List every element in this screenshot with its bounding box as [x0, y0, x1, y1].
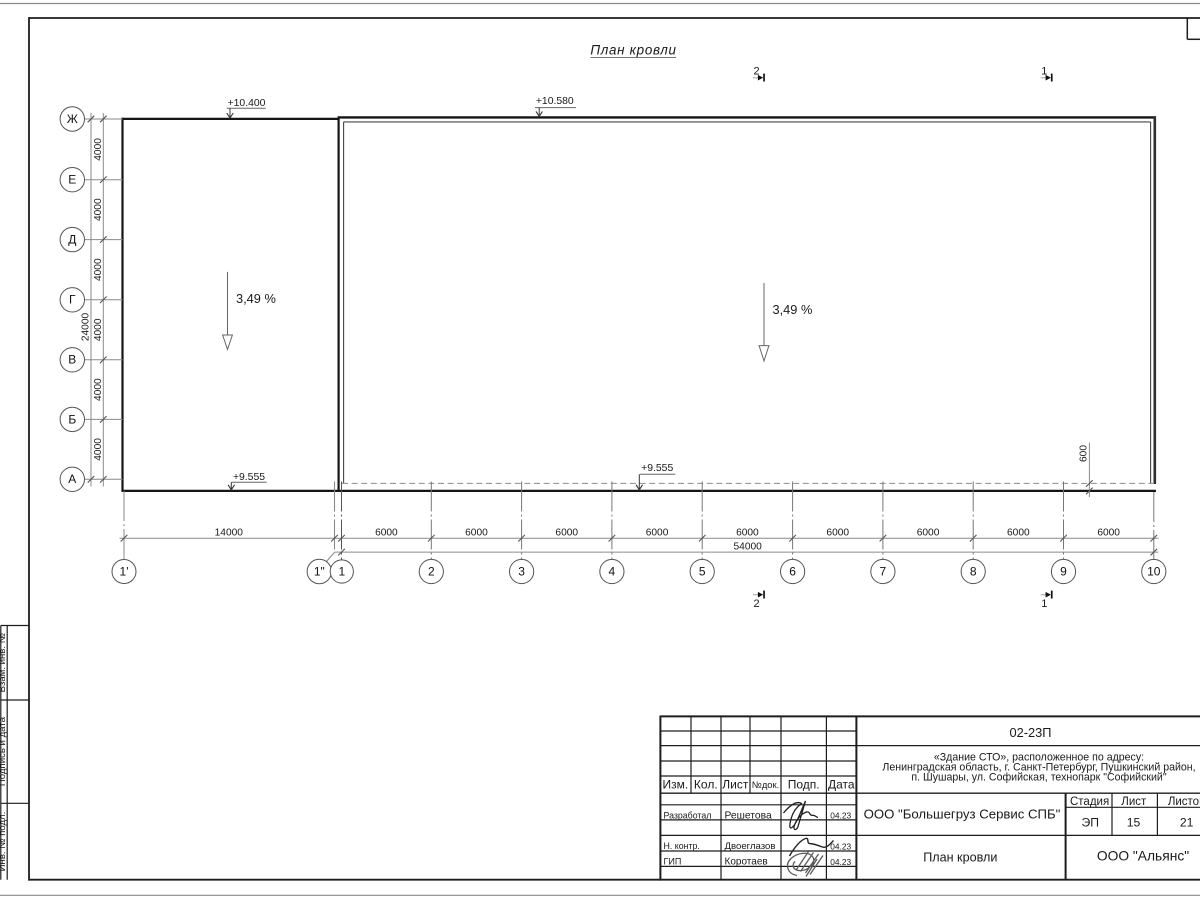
svg-text:8: 8 [970, 564, 977, 578]
svg-text:6000: 6000 [1007, 527, 1030, 538]
svg-text:2: 2 [428, 564, 435, 578]
svg-text:Подп.: Подп. [788, 778, 820, 792]
svg-text:Лист: Лист [722, 778, 749, 792]
svg-text:А: А [68, 472, 76, 486]
svg-text:Разработал: Разработал [664, 810, 712, 820]
svg-text:1': 1' [120, 564, 129, 578]
svg-text:54000: 54000 [734, 541, 763, 552]
svg-text:Решетова: Решетова [725, 810, 772, 821]
svg-text:04.23: 04.23 [830, 810, 851, 820]
svg-text:Лист: Лист [1121, 796, 1147, 808]
svg-text:План кровли: План кровли [923, 850, 997, 864]
svg-text:04.23: 04.23 [830, 841, 851, 851]
svg-text:1": 1" [314, 564, 325, 578]
svg-text:В: В [68, 353, 76, 367]
svg-text:ЭП: ЭП [1082, 816, 1100, 830]
svg-text:+9.555: +9.555 [641, 463, 673, 474]
svg-text:1: 1 [1041, 598, 1047, 610]
svg-text:6000: 6000 [917, 527, 940, 538]
svg-text:24000: 24000 [80, 313, 91, 342]
svg-text:6000: 6000 [736, 527, 759, 538]
svg-text:Дата: Дата [828, 778, 855, 792]
svg-text:Двоеглазов: Двоеглазов [725, 841, 776, 852]
svg-text:+9.555: +9.555 [233, 472, 265, 483]
svg-text:6000: 6000 [646, 527, 669, 538]
svg-text:Г: Г [69, 293, 76, 307]
svg-text:6000: 6000 [1097, 527, 1120, 538]
svg-text:4000: 4000 [93, 378, 104, 401]
svg-text:ООО "Альянс": ООО "Альянс" [1097, 849, 1189, 864]
svg-text:5: 5 [699, 564, 706, 578]
svg-text:3,49 %: 3,49 % [773, 302, 813, 317]
svg-text:№док.: №док. [752, 779, 779, 790]
svg-text:6000: 6000 [375, 527, 398, 538]
svg-text:4: 4 [609, 564, 616, 578]
svg-text:Коротаев: Коротаев [725, 856, 768, 867]
svg-text:Кол.: Кол. [694, 778, 718, 792]
svg-text:10: 10 [1147, 564, 1161, 578]
svg-text:Ж: Ж [67, 112, 78, 126]
svg-text:6000: 6000 [826, 527, 849, 538]
svg-text:4000: 4000 [93, 198, 104, 221]
svg-text:Листов: Листов [1168, 796, 1200, 808]
svg-text:Изм.: Изм. [663, 778, 689, 792]
svg-text:п. Шушары, ул. Софийская, техн: п. Шушары, ул. Софийская, технопарк "Соф… [911, 772, 1166, 784]
svg-text:3,49 %: 3,49 % [236, 291, 276, 306]
svg-text:2: 2 [754, 598, 760, 610]
svg-text:6: 6 [789, 564, 796, 578]
svg-text:+10.580: +10.580 [536, 96, 574, 107]
svg-text:15: 15 [1127, 816, 1141, 830]
svg-text:1: 1 [338, 564, 345, 578]
svg-text:Стадия: Стадия [1070, 796, 1109, 808]
svg-text:ООО "Большегруз Сервис СПБ": ООО "Большегруз Сервис СПБ" [864, 807, 1061, 822]
svg-text:600: 600 [1079, 445, 1090, 462]
svg-text:+10.400: +10.400 [228, 98, 266, 109]
svg-text:Д: Д [68, 233, 76, 247]
svg-text:9: 9 [1060, 564, 1067, 578]
svg-text:02-23П: 02-23П [1010, 725, 1052, 740]
svg-text:4000: 4000 [93, 318, 104, 341]
svg-text:Взам. инв. №: Взам. инв. № [0, 633, 8, 692]
svg-text:Инв. № подл.: Инв. № подл. [0, 812, 8, 872]
svg-text:4000: 4000 [93, 258, 104, 281]
svg-text:4000: 4000 [93, 138, 104, 161]
svg-text:14000: 14000 [215, 527, 244, 538]
svg-text:Подпись и дата: Подпись и дата [0, 716, 8, 786]
svg-text:04.23: 04.23 [830, 857, 851, 867]
svg-text:7: 7 [880, 564, 887, 578]
svg-text:Е: Е [68, 173, 76, 187]
svg-text:21: 21 [1180, 816, 1194, 830]
svg-text:ГИП: ГИП [664, 856, 682, 866]
svg-text:3: 3 [518, 564, 525, 578]
svg-text:План кровли: План кровли [590, 43, 676, 58]
svg-text:4000: 4000 [93, 438, 104, 461]
svg-text:6000: 6000 [465, 527, 488, 538]
svg-text:6000: 6000 [555, 527, 578, 538]
svg-text:Н. контр.: Н. контр. [664, 841, 700, 851]
svg-text:Б: Б [68, 412, 76, 426]
